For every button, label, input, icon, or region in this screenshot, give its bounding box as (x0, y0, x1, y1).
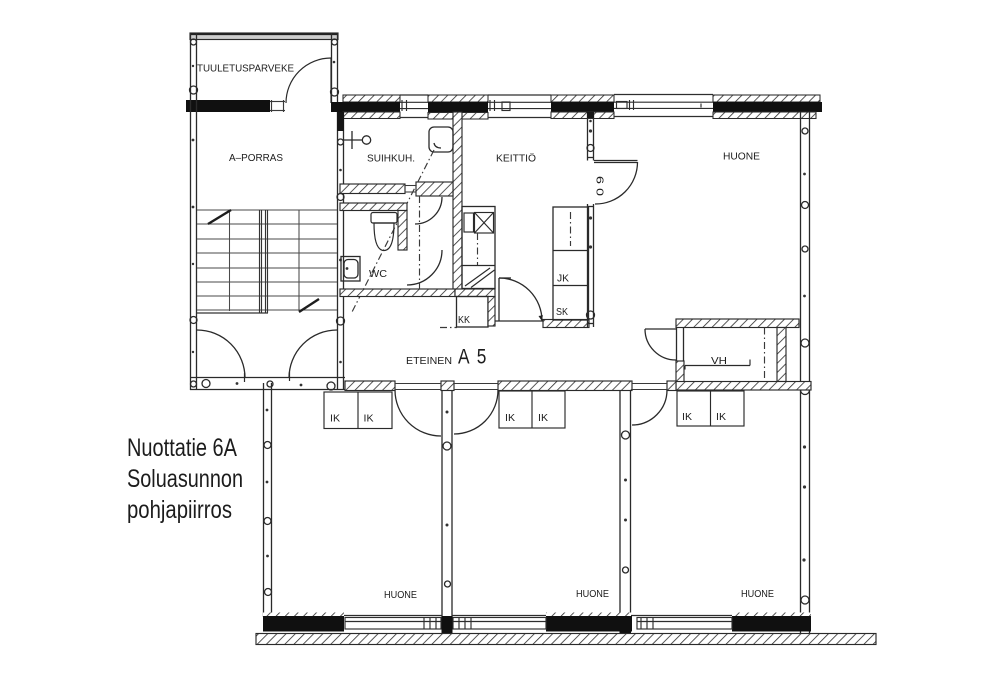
svg-text:Soluasunnon: Soluasunnon (127, 465, 243, 493)
svg-text:A–PORRAS: A–PORRAS (229, 152, 283, 164)
svg-text:IK: IK (330, 413, 340, 425)
svg-text:HUONE: HUONE (576, 588, 609, 600)
svg-text:IK: IK (364, 413, 374, 425)
svg-text:IK: IK (716, 411, 726, 423)
svg-text:0 9: 0 9 (595, 176, 607, 196)
svg-text:Nuottatie 6A: Nuottatie 6A (127, 434, 237, 462)
svg-text:JK: JK (557, 273, 569, 285)
svg-text:SUIHKUH.: SUIHKUH. (367, 153, 415, 165)
svg-text:HUONE: HUONE (741, 588, 774, 600)
svg-text:WC: WC (369, 268, 387, 280)
svg-text:TUULETUSPARVEKE: TUULETUSPARVEKE (197, 63, 294, 75)
svg-text:KEITTIÖ: KEITTIÖ (496, 153, 536, 165)
svg-text:IK: IK (682, 411, 692, 423)
svg-text:A 5: A 5 (458, 346, 488, 369)
svg-text:SK: SK (556, 306, 568, 318)
svg-text:pohjapiirros: pohjapiirros (127, 496, 232, 524)
svg-text:HUONE: HUONE (384, 589, 417, 601)
svg-text:HUONE: HUONE (723, 151, 760, 163)
svg-text:IK: IK (538, 412, 548, 424)
svg-text:VH: VH (711, 355, 727, 367)
svg-text:KK: KK (458, 314, 470, 326)
svg-text:IK: IK (505, 412, 515, 424)
svg-text:ETEINEN: ETEINEN (406, 355, 452, 367)
